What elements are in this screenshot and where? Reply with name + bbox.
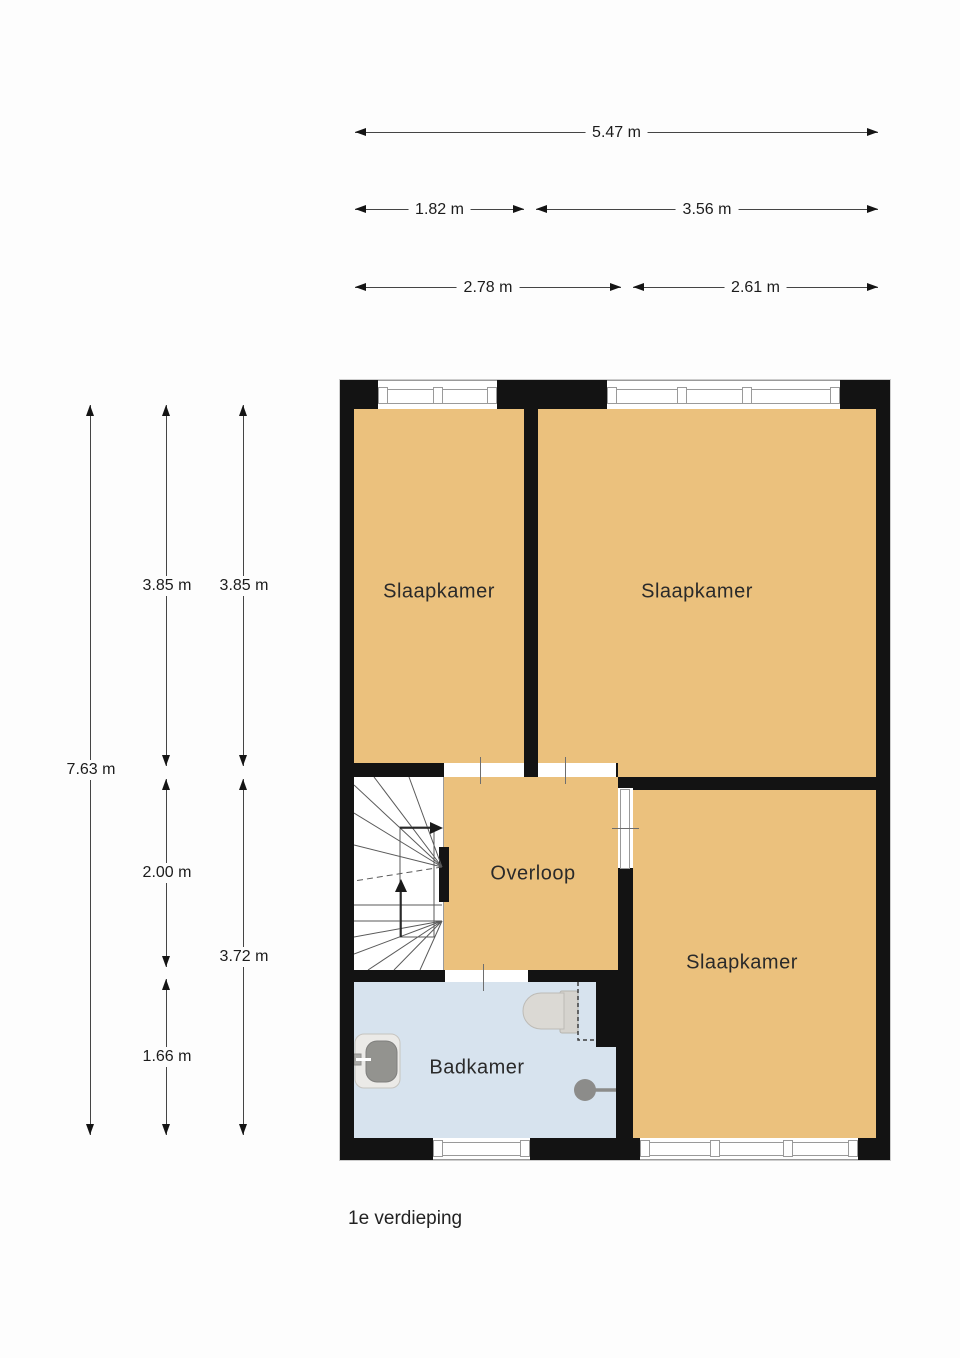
- room-label-badkamer: Badkamer: [429, 1057, 524, 1080]
- door-tick: [565, 757, 566, 784]
- door-tick: [612, 828, 639, 829]
- floorplan-page: 5.47 m 1.82 m 3.56 m 2.78 m 2.61 m 7.63 …: [0, 0, 960, 1358]
- window-cap: [487, 387, 497, 404]
- winder-staircase-icon: [354, 777, 443, 970]
- dim-height-bedrooms-2: 3.85 m: [243, 405, 244, 766]
- window: [433, 1138, 530, 1160]
- window-divider: [783, 1140, 793, 1157]
- window-divider: [710, 1140, 720, 1157]
- door-opening-slaapkamer-2: [538, 763, 616, 777]
- window-cap: [433, 1140, 443, 1157]
- window: [378, 380, 497, 409]
- door-opening-slaapkamer-1: [444, 763, 524, 777]
- door-leaf: [620, 789, 630, 869]
- window-cap: [607, 387, 617, 404]
- dim-label: 1.66 m: [136, 1047, 199, 1067]
- dim-label: 3.56 m: [676, 200, 739, 220]
- right-arrow-icon: [430, 822, 443, 834]
- stair-direction-arrows: [395, 822, 443, 937]
- dim-height-bathroom: 1.66 m: [166, 979, 167, 1135]
- window: [640, 1138, 858, 1160]
- window-divider: [677, 387, 687, 404]
- room-slaapkamer-2-extension: [618, 763, 876, 777]
- dim-total-height: 7.63 m: [90, 405, 91, 1135]
- room-label-slaapkamer-3: Slaapkamer: [686, 952, 798, 975]
- dim-width-bedroom2: 3.56 m: [536, 209, 878, 210]
- dim-width-landing: 2.78 m: [355, 287, 621, 288]
- window-cap: [520, 1140, 530, 1157]
- window-glass: [607, 389, 840, 404]
- dim-label: 2.78 m: [457, 278, 520, 298]
- shower-head-icon: [574, 1079, 616, 1101]
- window-glass: [433, 1142, 530, 1156]
- sink-icon: [354, 1034, 400, 1088]
- window: [607, 380, 840, 409]
- dim-height-bedroom3: 3.72 m: [243, 779, 244, 1135]
- room-label-slaapkamer-1: Slaapkamer: [383, 581, 495, 604]
- toilet-icon: [523, 991, 578, 1033]
- dim-label: 3.85 m: [136, 576, 199, 596]
- dim-total-width: 5.47 m: [355, 132, 878, 133]
- dim-label: 2.61 m: [724, 278, 787, 298]
- dim-label: 2.00 m: [136, 863, 199, 883]
- dim-height-landing: 2.00 m: [166, 779, 167, 967]
- shower-partition-dashed-line: [578, 982, 597, 1040]
- dim-width-bedroom3: 2.61 m: [633, 287, 878, 288]
- window-glass: [640, 1142, 858, 1156]
- dim-label: 3.85 m: [213, 576, 276, 596]
- room-label-overloop: Overloop: [490, 863, 575, 886]
- room-label-slaapkamer-2: Slaapkamer: [641, 581, 753, 604]
- window-cap: [378, 387, 388, 404]
- dim-height-bedrooms: 3.85 m: [166, 405, 167, 766]
- up-arrow-icon: [395, 879, 407, 892]
- dim-label: 5.47 m: [585, 123, 648, 143]
- window-cap: [830, 387, 840, 404]
- door-opening-badkamer: [445, 970, 528, 982]
- dim-label: 3.72 m: [213, 947, 276, 967]
- floor-caption: 1e verdieping: [348, 1208, 462, 1230]
- dim-label: 7.63 m: [60, 760, 123, 780]
- dim-label: 1.82 m: [408, 200, 471, 220]
- door-tick: [480, 757, 481, 784]
- window-cap: [848, 1140, 858, 1157]
- dim-width-bedroom1: 1.82 m: [355, 209, 524, 210]
- window-divider: [433, 387, 443, 404]
- window-divider: [742, 387, 752, 404]
- window-cap: [640, 1140, 650, 1157]
